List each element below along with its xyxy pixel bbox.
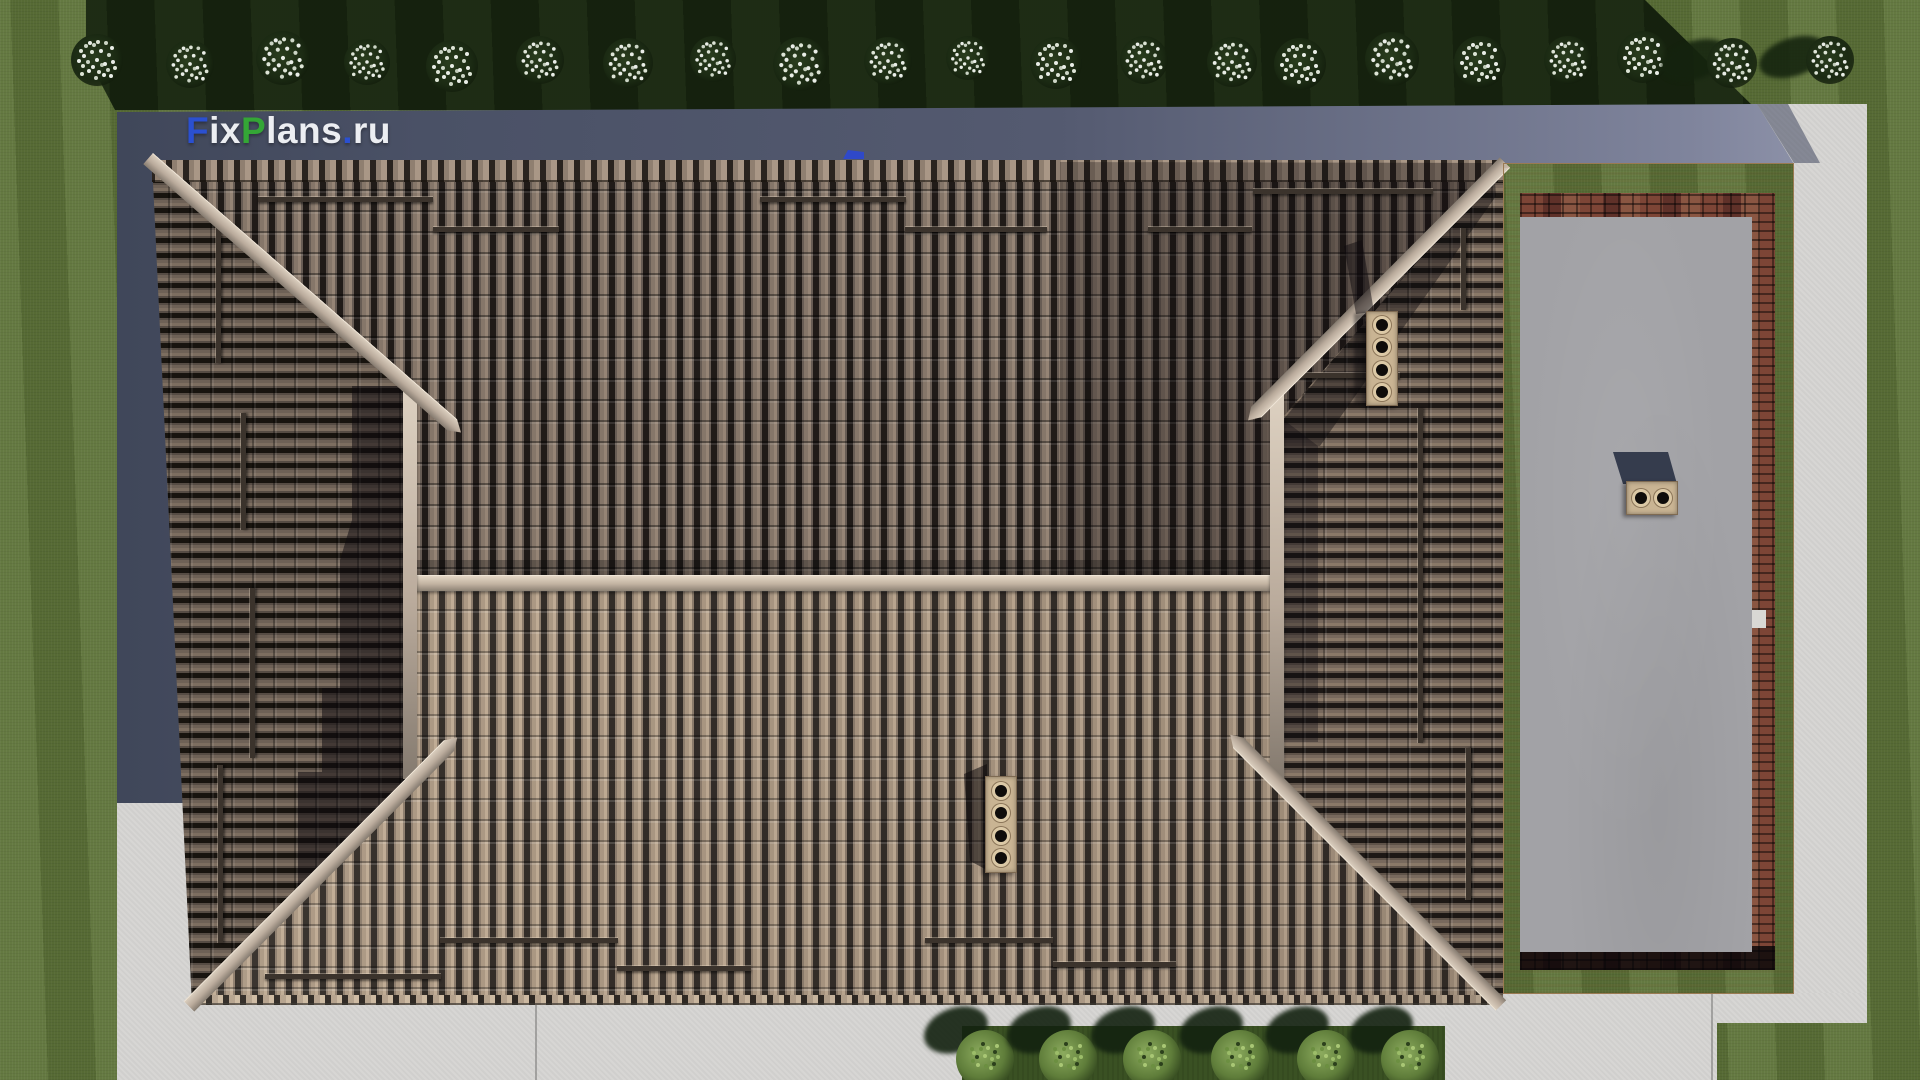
logo-segment: . <box>342 110 353 151</box>
terrace-chimney <box>1626 481 1678 515</box>
logo-segment: P <box>241 110 266 151</box>
logo-segment: ru <box>353 110 391 151</box>
chimney-flue-icon <box>1373 338 1391 356</box>
chimneys <box>0 0 1920 1080</box>
south-slope-chimney <box>985 776 1017 873</box>
chimney-flue-icon <box>992 782 1010 800</box>
chimney-flue-icon <box>992 849 1010 867</box>
chimney-flue-icon <box>1373 361 1391 379</box>
chimney-flue-icon <box>1654 489 1672 507</box>
watermark-logo: FixPlans.ru <box>186 110 391 152</box>
chimney-flue-icon <box>992 827 1010 845</box>
chimney-flue-icon <box>992 804 1010 822</box>
chimney-flue-icon <box>1373 383 1391 401</box>
aerial-roof-render: FixPlans.ru <box>0 0 1920 1080</box>
logo-segment: ix <box>209 110 241 151</box>
north-slope-chimney <box>1366 311 1398 406</box>
chimney-flue-icon <box>1373 316 1391 334</box>
chimney-flue-icon <box>1632 489 1650 507</box>
logo-segment: F <box>186 110 209 151</box>
logo-segment: lans <box>266 110 342 151</box>
